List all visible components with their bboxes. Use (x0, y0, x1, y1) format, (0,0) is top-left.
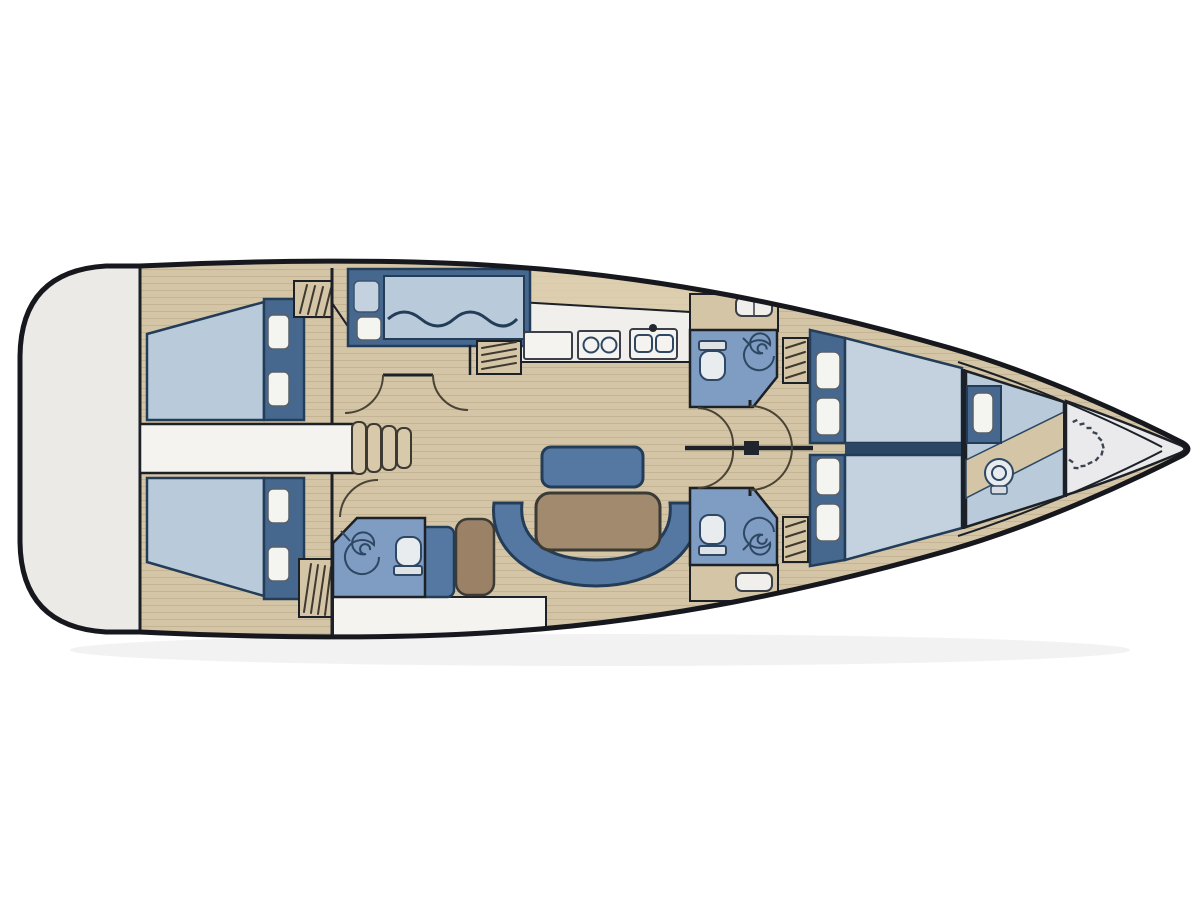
stern-platform (20, 266, 140, 632)
single-berth (384, 276, 524, 339)
head-aft (333, 518, 425, 597)
pillow (268, 315, 289, 349)
toilet-icon (700, 515, 725, 544)
skipper-berth-cabin (348, 269, 530, 346)
mast-icon (744, 441, 759, 455)
worktop (524, 332, 572, 359)
toilet-base (991, 486, 1007, 494)
steps-icon (397, 428, 411, 468)
pillow (268, 489, 289, 523)
hanging-locker-fwd-starboard (783, 517, 808, 562)
pillow (354, 281, 379, 312)
yacht-floor-plan-page (0, 0, 1200, 898)
basin-icon (736, 573, 772, 591)
hanging-locker-aft-starboard (299, 559, 332, 617)
pillow (816, 398, 840, 435)
pillow (268, 372, 289, 406)
steps-icon (352, 422, 366, 474)
head-forward-starboard (690, 488, 778, 601)
hanging-locker-salon (477, 341, 521, 374)
toilet-icon (396, 537, 421, 566)
hanging-locker-aft-port (294, 281, 332, 317)
toilet-icon (700, 351, 725, 380)
toilet-icon (394, 566, 422, 575)
sink-icon (630, 329, 677, 359)
berth-divider (845, 443, 962, 455)
hanging-locker-fwd-port (783, 338, 808, 383)
pillow (816, 504, 840, 541)
pillow (973, 393, 993, 433)
nav-chair (456, 519, 494, 595)
steps-icon (382, 426, 396, 470)
toilet-icon (699, 341, 726, 350)
salon-table (536, 493, 660, 550)
faucet (649, 324, 657, 332)
steps-icon (367, 424, 381, 472)
companionway-steps (352, 422, 411, 474)
yacht-floor-plan (0, 0, 1200, 898)
head-forward-port (690, 294, 778, 407)
straight-bench (542, 447, 643, 487)
hull-shadow (70, 634, 1130, 666)
pillow (816, 352, 840, 389)
pillow (357, 317, 381, 340)
toilet-icon (699, 546, 726, 555)
pillow (816, 458, 840, 495)
companionway-walkway (140, 424, 353, 473)
pillow (268, 547, 289, 581)
toilet-icon (985, 459, 1013, 487)
